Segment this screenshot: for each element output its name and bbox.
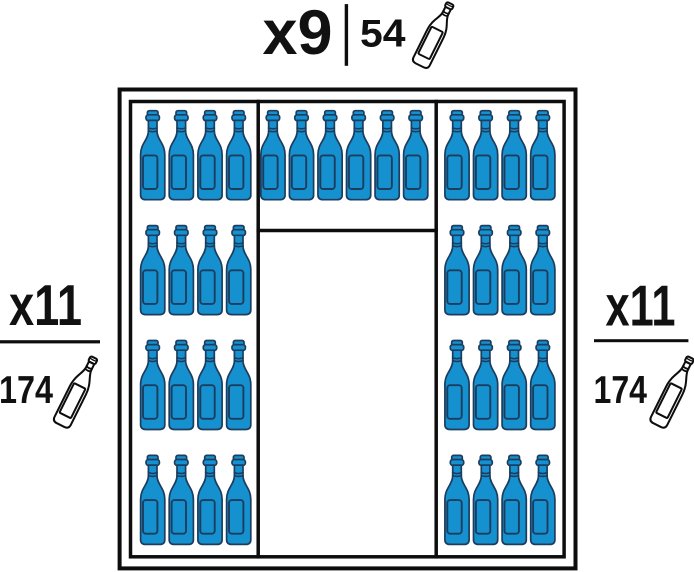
svg-text:174: 174 bbox=[594, 369, 648, 412]
svg-text:174: 174 bbox=[0, 369, 53, 412]
svg-text:x11: x11 bbox=[606, 274, 676, 338]
svg-text:54: 54 bbox=[360, 13, 406, 56]
svg-text:x11: x11 bbox=[9, 274, 82, 338]
svg-text:x9: x9 bbox=[263, 0, 333, 68]
